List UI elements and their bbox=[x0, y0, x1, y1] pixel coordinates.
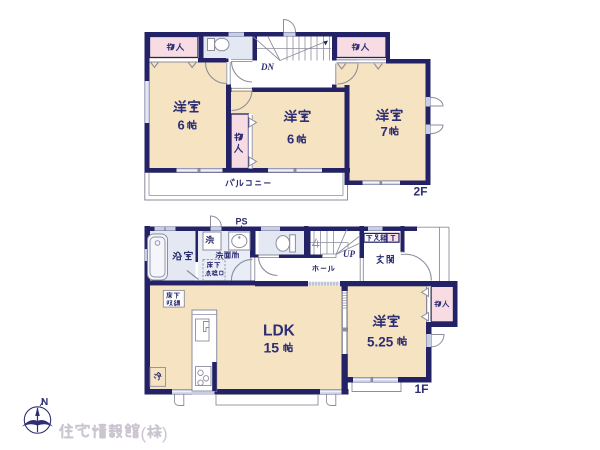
svg-text:1F: 1F bbox=[415, 382, 429, 396]
svg-text:UP: UP bbox=[343, 249, 355, 259]
svg-text:6: 6 bbox=[178, 118, 185, 133]
svg-text:T: T bbox=[391, 234, 396, 243]
svg-text:2F: 2F bbox=[414, 185, 428, 199]
svg-text:(: ( bbox=[141, 424, 147, 443]
svg-text:5.25: 5.25 bbox=[367, 335, 394, 350]
svg-text:6: 6 bbox=[287, 132, 294, 147]
svg-text:LDK: LDK bbox=[263, 323, 296, 340]
svg-text:PS: PS bbox=[236, 217, 248, 227]
svg-text:DN: DN bbox=[260, 62, 274, 72]
svg-text:15: 15 bbox=[264, 340, 280, 356]
svg-text:7: 7 bbox=[381, 124, 388, 139]
svg-text:): ) bbox=[162, 424, 168, 443]
